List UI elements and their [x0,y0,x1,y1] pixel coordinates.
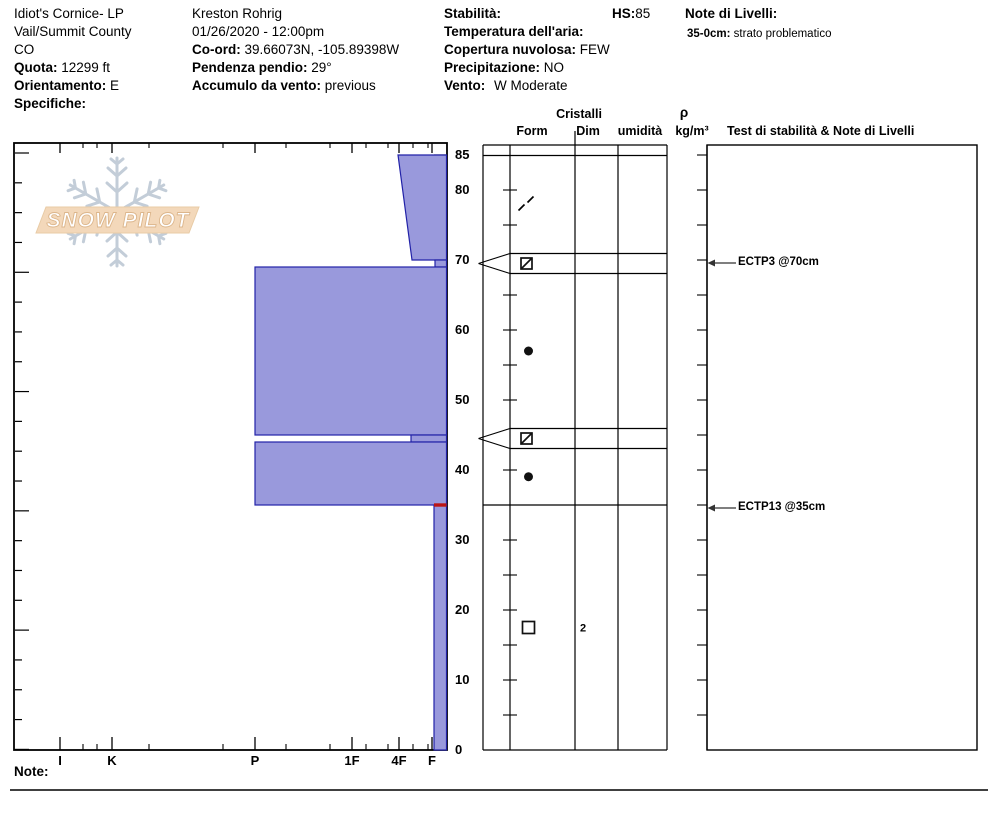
depth-axis-label: 40 [455,462,469,478]
snow-layer [255,442,447,505]
stability-test-label: ECTP3 @70cm [738,256,819,268]
depth-axis-label: 60 [455,322,469,338]
grain-symbol-decomposing [519,205,525,211]
grain-symbol-rounded [524,347,533,356]
hardness-axis-label: K [99,753,125,768]
col-header-density-symbol: ρ [674,105,694,120]
snowflake-arm [107,158,127,212]
grain-size-value: 2 [580,623,586,635]
depth-axis-label: 30 [455,532,469,548]
hardness-axis-label: I [47,753,73,768]
col-header-form: Form [507,124,557,138]
hardness-axis-label: 1F [339,753,365,768]
depth-axis-label: 0 [455,742,462,758]
depth-axis-label: 70 [455,252,469,268]
hardness-axis-label: P [242,753,268,768]
col-header-density-unit: kg/m³ [662,124,722,138]
depth-axis-label: 10 [455,672,469,688]
snow-layer [411,435,447,442]
hardness-axis-label: 4F [386,753,412,768]
stability-test-box [707,145,977,750]
snowpilot-logo-text: SNOW PILOT [47,209,191,232]
problem-layer-marker [434,503,447,506]
col-header-umidita: umidità [610,124,670,138]
stability-test-label: ECTP13 @35cm [738,501,825,513]
col-header-stability-tests: Test di stabilità & Note di Livelli [727,124,914,138]
snowpilot-profile-page: Idiot's Cornice- LP Vail/Summit County C… [0,0,994,840]
snow-layer [398,155,447,260]
depth-axis-label: 80 [455,182,469,198]
snow-layer [435,260,447,267]
grain-symbol-rounded [524,472,533,481]
hardness-axis-label: F [419,753,445,768]
depth-axis-label: 85 [455,147,469,163]
col-header-cristalli: Cristalli [540,107,618,121]
note-label: Note: [14,764,49,779]
grain-symbol-facets [523,622,535,634]
grain-symbol-decomposing [528,197,534,203]
test-arrow-head [708,505,716,512]
depth-axis-label: 50 [455,392,469,408]
snow-layer [255,267,447,435]
col-header-dim: Dim [563,124,613,138]
test-arrow-head [708,260,716,267]
snow-layer [434,505,447,750]
depth-axis-label: 20 [455,602,469,618]
